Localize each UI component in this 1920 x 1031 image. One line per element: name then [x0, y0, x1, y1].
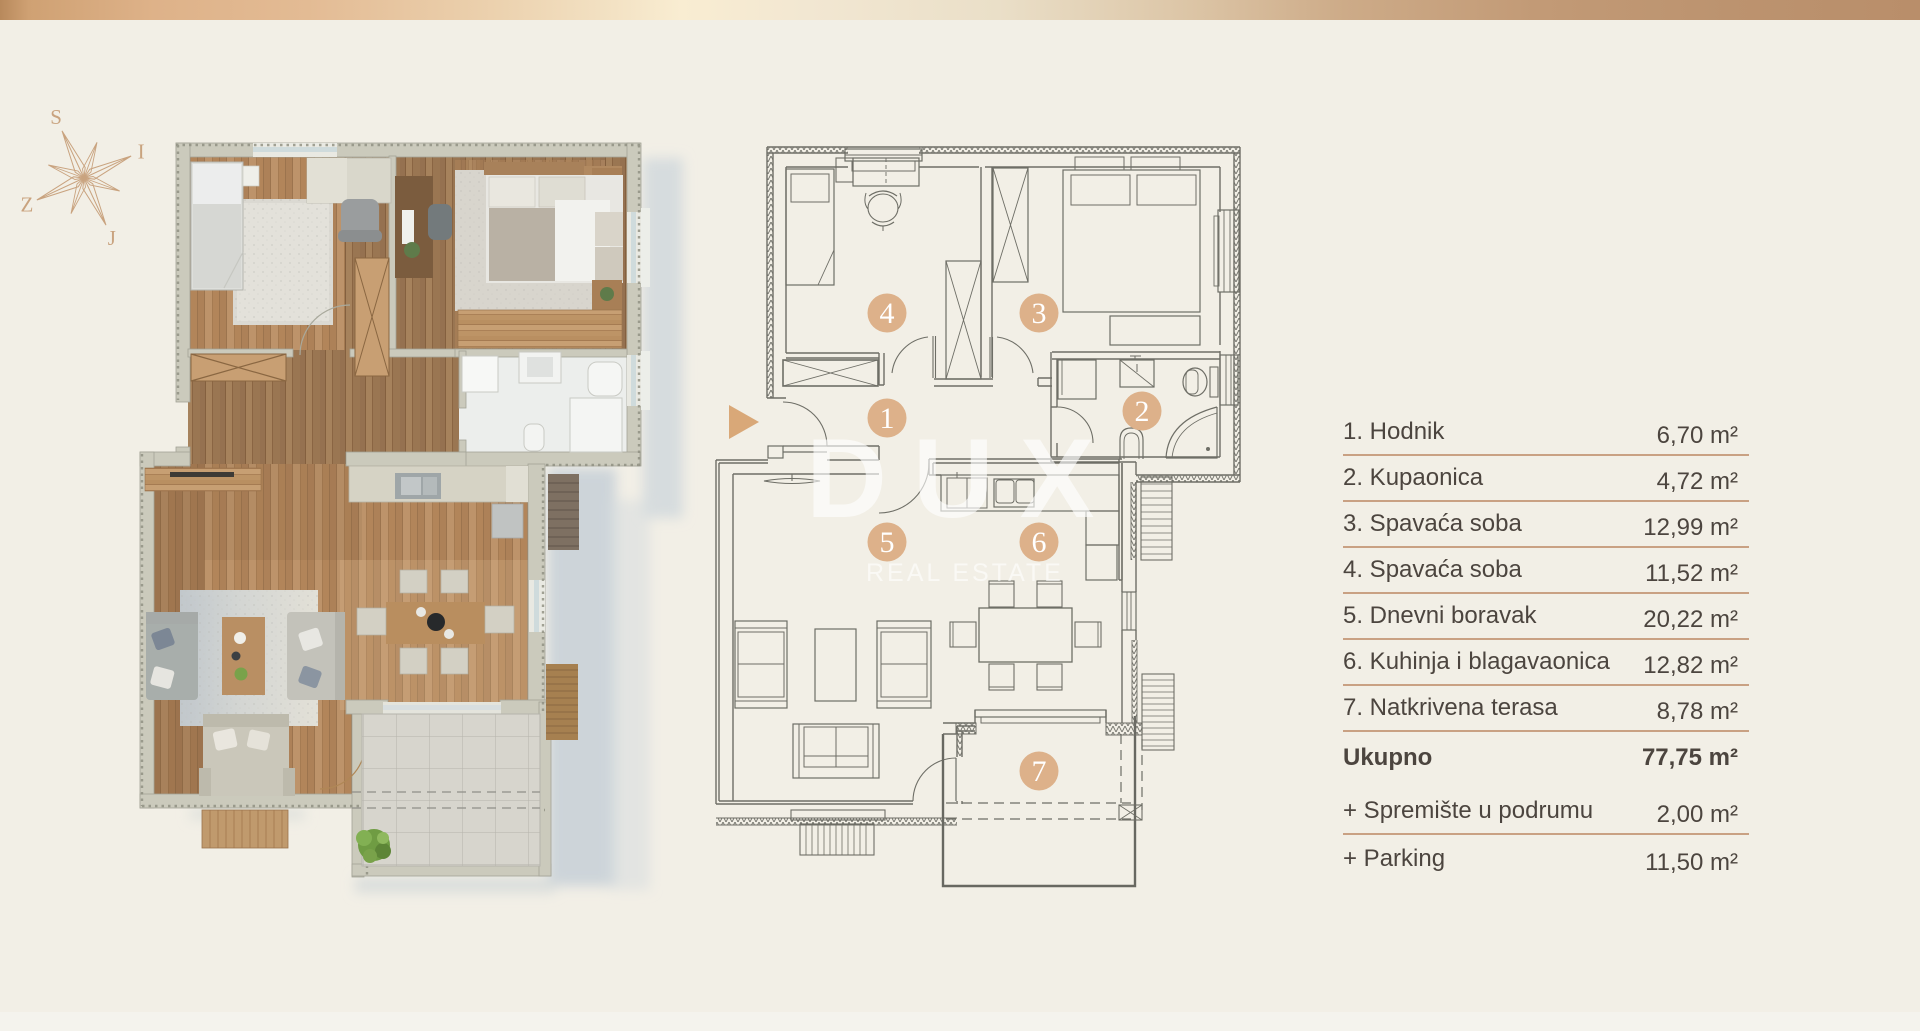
svg-text:Z: Z: [20, 193, 33, 217]
svg-text:S: S: [50, 108, 62, 129]
svg-text:J: J: [108, 226, 116, 248]
svg-text:4: 4: [880, 297, 895, 330]
svg-text:3: 3: [1032, 297, 1047, 330]
svg-text:7: 7: [1032, 755, 1047, 788]
svg-text:2: 2: [1135, 395, 1150, 428]
